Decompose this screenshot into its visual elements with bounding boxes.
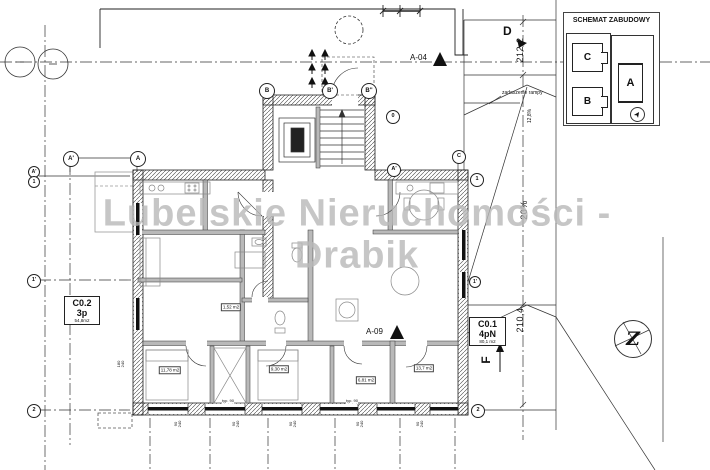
a09-triangle (390, 325, 404, 339)
axis-label: A' (391, 167, 396, 173)
building-c-label: C (584, 52, 591, 63)
axis-label: 2 (476, 408, 479, 414)
room-area-label: 1,52 m2 (221, 303, 241, 311)
window-dim: 180 240 (117, 361, 125, 368)
site-plan-inset: SCHEMAT ZABUDOWY C B A ➤ (563, 12, 660, 126)
dimension-212: 212,2 (515, 37, 525, 62)
axis-label: 0 (391, 114, 394, 120)
inset-title: SCHEMAT ZABUDOWY (564, 17, 659, 24)
axis-bubble: A' (63, 151, 79, 167)
building-a-label: A (627, 77, 635, 89)
building-c: C (572, 43, 603, 72)
room-area-label: 13,7 m2 (414, 364, 434, 372)
north-label: Z (626, 328, 640, 350)
inset-compass-icon: ➤ (630, 107, 645, 122)
axis-label: 2 (32, 408, 35, 414)
axis-label: B' (327, 88, 333, 94)
window-type-note: typ. 90 (346, 399, 358, 404)
unit-label-c02: C0.2 3p 54,8m2 (64, 296, 100, 325)
dim-bottom: 240 (121, 361, 125, 368)
axis-bubble: B'' (361, 83, 377, 99)
window-dim: 90 240 (416, 421, 424, 428)
building-c-tab (601, 52, 608, 64)
neighbour-outline (100, 5, 468, 55)
axis-bubble: A' (387, 163, 401, 177)
window-dim: 90 240 (356, 421, 364, 428)
unit-area: 54,8m2 (67, 318, 97, 323)
room-area-label: 9,30 m2 (269, 365, 289, 373)
room-area-label: 6,81 m2 (356, 376, 376, 384)
axis-bubble: B' (322, 83, 338, 99)
watermark-line1: Lubelskie Nieruchomości - (103, 193, 612, 236)
ramp-canopy-note: zadaszenie rampy (502, 90, 543, 96)
section-marker-a09: A-09 (366, 327, 383, 336)
axis-label: 1 (475, 177, 478, 183)
axis-label: C (457, 154, 461, 160)
building-b: B (572, 87, 603, 116)
axis-bubble: 2 (471, 404, 485, 418)
a04-triangle (433, 52, 447, 66)
unit-id: C0.2 (67, 298, 97, 308)
axis-label: 1' (473, 280, 477, 285)
unit-id: C0.1 (472, 319, 503, 329)
axis-bubble: 1 (470, 173, 484, 187)
axis-label: 1 (33, 180, 36, 185)
axis-label: A (136, 156, 140, 162)
window-type-note: typ. 90 (222, 399, 234, 404)
axis-bubble: 0 (386, 110, 400, 124)
bed-left (146, 350, 188, 400)
window-dim: 90 240 (289, 421, 297, 428)
axis-bubble: B (259, 83, 275, 99)
axis-bubble: 2 (27, 404, 41, 418)
room-area-label: 11,78 m2 (159, 366, 181, 374)
wardrobe (214, 348, 246, 403)
unit-layout: 3p (67, 308, 97, 318)
entrance-marker-f: F (479, 356, 493, 363)
dimension-210: 210,4 (515, 307, 525, 332)
floor-plan-drawing: A' A B B' B'' 0 A' C 1 1' 2 A' 1 1' 2 A-… (0, 0, 710, 470)
unit-layout: 4pN (472, 329, 503, 339)
axis-bubble: 1' (469, 276, 481, 288)
dim-bottom: 240 (293, 421, 297, 428)
axis-label: B'' (365, 88, 372, 94)
axis-bubble: A (130, 151, 146, 167)
unit-area: 80,1 m2 (472, 339, 503, 344)
building-a: A (618, 63, 643, 103)
north-compass-icon: Z (614, 320, 652, 358)
axis-bubble: 1 (28, 176, 40, 188)
bed-middle (258, 350, 298, 400)
planting-icons (309, 50, 328, 88)
dim-bottom: 240 (360, 421, 364, 428)
unit-label-c01: C0.1 4pN 80,1 m2 (469, 317, 506, 346)
building-b-label: B (584, 96, 591, 107)
watermark-line2: Drabik (295, 235, 419, 278)
axis-label: A' (32, 170, 37, 175)
toilet-2 (275, 311, 285, 333)
window-dim: 90 240 (174, 421, 182, 428)
axis-bubble: 1' (27, 274, 41, 288)
dim-bottom: 240 (178, 421, 182, 428)
window-dim: 90 240 (232, 421, 240, 428)
coffee-table (235, 252, 265, 268)
slope-12-8: 12,8% (527, 109, 533, 123)
dim-bottom: 240 (420, 421, 424, 428)
building-b-tab (601, 96, 608, 108)
axis-label: A' (68, 156, 74, 162)
washer (336, 299, 358, 321)
axis-bubble: C (452, 150, 466, 164)
entrance-marker-d: D (503, 24, 512, 38)
axis-label: 1' (32, 278, 36, 284)
section-marker-a04: A-04 (410, 53, 427, 62)
stair-elevator (279, 110, 364, 166)
axis-label: B (265, 88, 269, 94)
dim-bottom: 240 (236, 421, 240, 428)
